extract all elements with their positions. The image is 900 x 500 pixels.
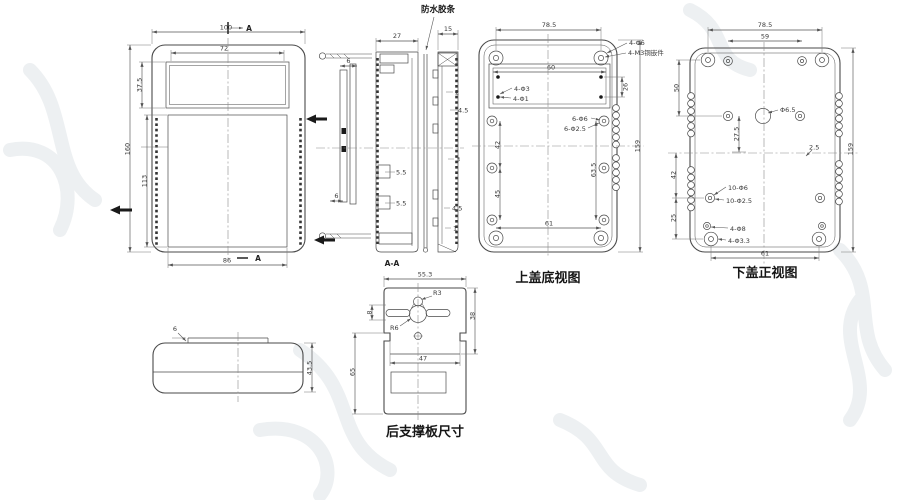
callout-bottomcover-boss-a: 10-Φ6 [728,184,748,192]
top-cover-vents [613,105,620,191]
section-label-a-top: A [246,24,252,33]
dim-clip-top: 6 [346,57,350,65]
side-body-outline [376,52,418,252]
callout-bottomcover-corner-b: 4-Φ3.3 [728,237,750,245]
center-hole [755,108,770,123]
screw-head-top [319,53,325,59]
callout-topcover-corner-b: 4-M3铜嵌件 [628,48,664,57]
dim-plate-width-top: 55.3 [418,271,432,279]
slot-right [426,310,450,317]
front-outline [152,45,305,252]
dim-topcover-left-upper: 42 [494,141,502,149]
dim-rib-a: 5.5 [396,169,406,177]
dim-right-5: 1 [453,225,457,233]
dim-front-height-body: 113 [141,175,149,187]
dim-clip-bottom: 6 [334,192,338,200]
dim-plate-slot: 8 [366,310,374,314]
dim-front-window-width: 72 [220,45,228,53]
front-view: 100 72 37.5 160 113 86 A A [110,22,305,268]
callout-topcover-window-a: 4-Φ3 [514,85,530,93]
dim-rib-b: 5.5 [396,200,406,208]
dim-bottomcover-left-mid: 42 [670,171,678,179]
dim-topcover-right-inner: 63.5 [590,163,598,177]
side-right-outline [438,52,458,252]
radius-bottom-label: R6 [390,324,399,332]
dim-center-hole: Φ6.5 [780,106,795,114]
support-plate-outline [384,288,466,414]
dim-right-1: 2 [455,89,459,97]
assembly-arrow-left-icon [110,206,132,215]
dim-plate-right: 38 [469,312,477,320]
callout-topcover-boss-b: 6-Φ2.5 [564,125,586,133]
bottom-cover-front-view: 78.5 59 50 Φ6.5 27.5 2.5 42 25 159 61 10… [668,21,860,281]
gasket-label: 防水胶条 [421,4,456,15]
dim-bottomcover-top: 78.5 [758,21,772,29]
assembly-arrow-bottom-icon [314,236,335,245]
profile-view: 6 43.5 [153,325,316,402]
dim-plate-left: 65 [349,368,357,376]
view-title-bottom-cover: 下盖正视图 [732,265,797,281]
dim-front-width-top: 100 [220,24,232,32]
dim-bottomcover-left-upper: 50 [673,84,681,92]
front-body [168,115,287,247]
callout-bottomcover-boss-b: 10-Φ2.5 [726,197,752,205]
clip-part-b [350,64,356,204]
section-label-aa: A-A [385,259,400,268]
dim-topcover-top: 78.5 [542,21,556,29]
front-window-outer [166,62,289,108]
section-label-a-bottom: A [255,254,261,263]
dim-bottomcover-offset: 2.5 [809,144,819,152]
dim-bottomcover-right-total: 159 [847,143,855,155]
dim-topcover-left-lower: 45 [494,190,502,198]
clip-part-a [340,70,347,202]
dim-topcover-bottom: 61 [545,220,553,228]
top-cover-bottom-view: 60 26 78.5 4-Φ6 4-M3铜嵌件 4-Φ3 4-Φ1 6-Φ6 6… [472,21,664,286]
dim-bottomcover-mid: 27.5 [733,127,741,141]
dim-bottomcover-bottom: 61 [761,250,769,258]
dim-topcover-window-height: 26 [622,83,630,91]
dim-profile-step: 6 [173,325,177,333]
profile-outline [153,343,303,393]
dim-right-4: 4.5 [452,205,462,213]
dim-profile-height: 43.5 [306,361,314,375]
dim-plate-mid-width: 47 [419,355,427,363]
dim-side-width-right: 15 [444,25,452,33]
assembly-arrow-mid-icon [306,115,327,124]
dim-bottomcover-left-lower: 25 [670,214,678,222]
dim-right-3: 3 [456,156,460,164]
dim-bottomcover-top-inner: 59 [761,33,769,41]
dim-side-width-main: 27 [393,32,401,40]
dim-front-height-total: 160 [124,143,132,155]
slot-left [386,310,410,317]
view-title-top-cover: 上盖底视图 [515,270,580,286]
cad-drawing-canvas: 100 72 37.5 160 113 86 A A [0,0,900,500]
front-window-inner [170,66,286,105]
top-cover-screw-posts [489,51,608,245]
dim-right-2: 4.5 [458,107,468,115]
radius-top-label: R3 [433,289,442,297]
support-plate-view: 55.3 R3 R6 8 38 47 65 后支撑板尺寸 [349,271,479,441]
dim-front-width-bottom: 86 [223,257,231,265]
cad-drawing: 100 72 37.5 160 113 86 A A [0,0,900,500]
dim-front-window-height: 37.5 [136,78,144,92]
side-section-view: 6 6 5.5 5.5 27 防水胶条 [306,4,468,268]
plate-window [391,372,446,393]
callout-topcover-window-b: 4-Φ1 [513,95,529,103]
view-title-support-plate: 后支撑板尺寸 [386,424,464,440]
callout-topcover-boss-a: 6-Φ6 [572,115,588,123]
callout-bottomcover-corner-a: 4-Φ8 [730,225,746,233]
